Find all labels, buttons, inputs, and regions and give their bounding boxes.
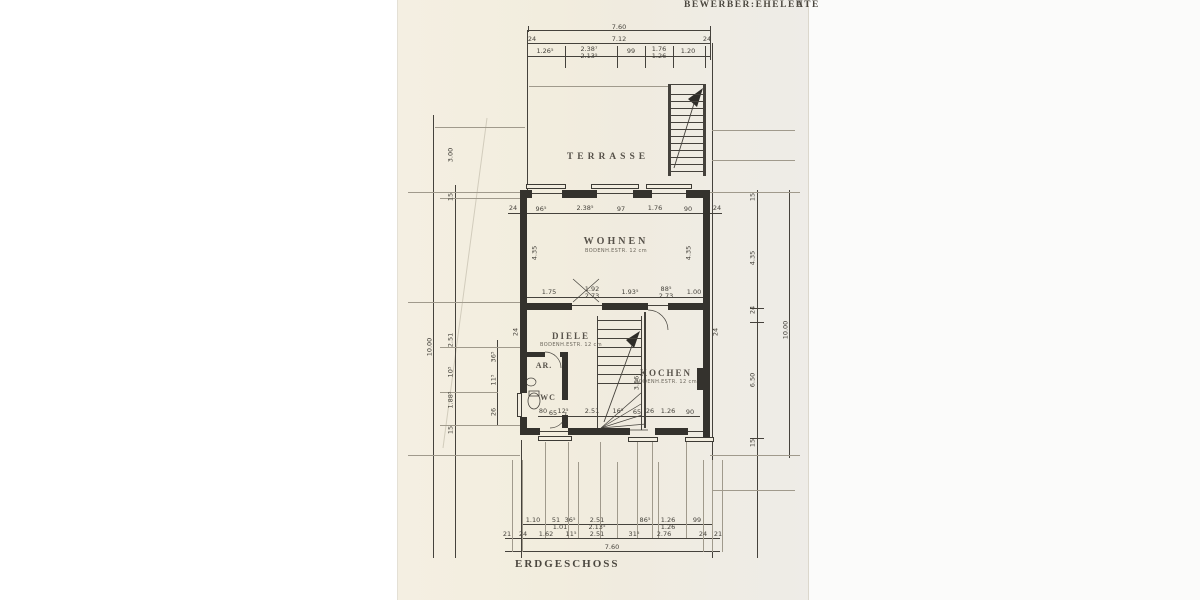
dimension-label: 31⁵: [629, 531, 640, 538]
dimension-label: 10.00: [783, 321, 790, 340]
dimension-line: [598, 338, 641, 339]
dimension-line: [668, 84, 706, 85]
dimension-line: [671, 101, 703, 102]
dimension-label: 26: [491, 408, 498, 416]
dimension-label: 90: [684, 206, 692, 213]
dimension-label: 36⁵: [565, 517, 576, 524]
window-sill: [538, 436, 572, 441]
scan-mark: A: [796, 0, 804, 10]
dimension-label: 2.51: [590, 531, 604, 538]
dimension-label: 1.00: [687, 289, 701, 296]
dimension-line: [688, 431, 703, 432]
dimension-label: 15: [448, 426, 455, 434]
dimension-line: [671, 129, 703, 130]
dimension-line: [598, 320, 641, 321]
extension-line: [408, 455, 520, 456]
extension-line: [578, 462, 579, 538]
extension-line: [686, 442, 687, 538]
wall-segment: [520, 428, 540, 435]
dimension-label: 1.93⁵: [621, 289, 638, 296]
dimension-label: 10.00: [427, 338, 434, 357]
dimension-label: 4.35: [750, 251, 757, 265]
wall-segment: [520, 303, 572, 310]
extension-line: [712, 130, 795, 131]
dimension-line: [505, 538, 720, 539]
extension-line: [658, 462, 659, 538]
dimension-label: 7.60: [612, 24, 626, 31]
dimension-label: 24: [509, 205, 517, 212]
dimension-label: 1.26⁵: [536, 48, 553, 55]
dimension-label: 21: [503, 531, 511, 538]
dimension-line: [703, 85, 706, 176]
dimension-line: [528, 56, 710, 57]
dimension-label: 65: [549, 410, 557, 417]
floor-title: ERDGESCHOSS: [515, 558, 620, 570]
dimension-label: 11⁵: [566, 531, 577, 538]
dimension-label: 1.62: [539, 531, 553, 538]
wall-segment: [697, 368, 703, 390]
wall-segment: [703, 197, 710, 440]
dimension-line: [671, 143, 703, 144]
dimension-line: [433, 115, 434, 558]
dimension-label: 24: [528, 36, 536, 43]
dimension-line: [705, 46, 706, 68]
dimension-label: 24: [699, 531, 707, 538]
floor-plan-scan: BEWERBER:EHELEUTE A ERDGESCHOSS TERRASSE…: [0, 0, 1200, 600]
dimension-line: [528, 26, 529, 32]
dimension-label: 1.26: [661, 408, 675, 415]
dimension-line: [673, 46, 674, 68]
extension-line: [652, 442, 653, 538]
dimension-line: [527, 30, 528, 190]
extension-line: [529, 86, 668, 87]
room-note-wohnen: BODENH.ESTR. 12 cm: [585, 248, 647, 254]
dimension-label: 1.75: [542, 289, 556, 296]
wall-segment: [602, 303, 648, 310]
room-label-kochen: KOCHEN: [640, 368, 692, 378]
dimension-label: 97: [617, 206, 625, 213]
window-sill: [591, 184, 639, 189]
extension-line: [435, 127, 525, 128]
dimension-label: 99: [693, 517, 701, 524]
dimension-line: [505, 551, 720, 552]
scan-margin-left: [0, 0, 398, 600]
dimension-label: 24: [513, 328, 520, 336]
wall-segment: [668, 303, 703, 310]
room-label-wohnen: WOHNEN: [584, 236, 649, 247]
wall-segment: [527, 352, 545, 357]
dimension-label: 24: [713, 328, 720, 336]
dimension-label: 12⁵: [558, 408, 569, 415]
extension-line: [712, 460, 713, 552]
dimension-label: 26: [646, 408, 654, 415]
dimension-line: [671, 171, 703, 172]
dimension-label: 90: [686, 409, 694, 416]
dimension-label: 7.60: [605, 544, 619, 551]
dimension-line: [597, 193, 633, 194]
dimension-label: 4.35: [686, 246, 693, 260]
dimension-line: [617, 46, 618, 68]
dimension-line: [750, 322, 764, 323]
wall-segment: [562, 415, 568, 428]
dimension-line: [671, 164, 703, 165]
dimension-label: 10⁵: [448, 367, 455, 378]
dimension-label: 24: [713, 205, 721, 212]
dimension-line: [598, 347, 641, 348]
dimension-label: 1.10: [526, 517, 540, 524]
dimension-label: 80: [539, 408, 547, 415]
dimension-label: 2.13⁵: [580, 53, 597, 60]
window-sill: [628, 437, 658, 442]
dimension-line: [671, 122, 703, 123]
window-sill: [526, 184, 566, 189]
dimension-label: 36⁵: [491, 352, 498, 363]
window-sill: [646, 184, 692, 189]
extension-line: [408, 302, 520, 303]
room-label-diele: DIELE: [552, 331, 590, 341]
dimension-line: [520, 297, 710, 298]
extension-line: [617, 462, 618, 538]
room-label-terrasse: TERRASSE: [567, 152, 649, 162]
window-sill: [685, 437, 714, 442]
dimension-label: 96⁵: [536, 206, 547, 213]
extension-line: [408, 192, 520, 193]
wall-segment: [520, 197, 527, 393]
scan-margin-right: [808, 0, 1200, 600]
dimension-line: [671, 157, 703, 158]
room-label-ar: AR.: [536, 361, 553, 370]
extension-line: [545, 442, 546, 538]
dimension-line: [710, 26, 711, 60]
dimension-label: 6.50: [750, 373, 757, 387]
dimension-line: [528, 43, 710, 44]
dimension-label: 2.73: [659, 293, 673, 300]
dimension-label: 24: [703, 36, 711, 43]
room-label-wc: WC: [540, 393, 556, 402]
extension-line: [710, 455, 800, 456]
dimension-line: [668, 85, 671, 176]
dimension-line: [598, 356, 641, 357]
dimension-line: [757, 190, 758, 558]
extension-line: [722, 460, 723, 552]
dimension-label: 99: [627, 48, 635, 55]
dimension-label: 16⁵: [613, 408, 624, 415]
dimension-label: 1.20: [681, 48, 695, 55]
dimension-label: 2.38⁵: [576, 205, 593, 212]
wall-segment: [568, 428, 630, 435]
dimension-label: 2.73: [585, 293, 599, 300]
dimension-label: 65: [633, 409, 641, 416]
wall-segment: [655, 428, 688, 435]
dimension-label: 24: [750, 306, 757, 314]
dimension-label: 1.76: [648, 205, 662, 212]
dimension-line: [648, 305, 668, 306]
wall-segment: [562, 357, 568, 400]
dimension-line: [641, 316, 642, 430]
extension-line: [522, 460, 523, 552]
dimension-line: [671, 94, 703, 95]
dimension-label: 1.26: [652, 53, 666, 60]
window-sill: [517, 393, 522, 417]
dimension-label: 15: [750, 439, 757, 447]
dimension-line: [565, 46, 566, 68]
dimension-line: [532, 193, 562, 194]
dimension-label: 7.12: [612, 36, 626, 43]
dimension-line: [671, 115, 703, 116]
dimension-label: 2.51: [448, 333, 455, 347]
dimension-label: 2.76: [657, 531, 671, 538]
dimension-label: 11⁵: [491, 375, 498, 386]
dimension-line: [508, 213, 722, 214]
wall-segment: [562, 190, 597, 198]
dimension-line: [671, 150, 703, 151]
dimension-label: 15: [750, 193, 757, 201]
dimension-label: 86⁵: [640, 517, 651, 524]
dimension-label: 15: [448, 193, 455, 201]
dimension-line: [598, 365, 641, 366]
dimension-line: [598, 329, 641, 330]
extension-line: [637, 442, 638, 538]
extension-line: [712, 490, 795, 491]
dimension-line: [671, 108, 703, 109]
dimension-label: 4.35: [532, 246, 539, 260]
extension-line: [712, 160, 795, 161]
dimension-label: 3.00: [448, 148, 455, 162]
dimension-line: [572, 305, 602, 306]
dimension-label: 2.51: [585, 408, 599, 415]
dimension-line: [540, 431, 568, 432]
dimension-label: 1.88⁵: [448, 391, 455, 408]
dimension-line: [455, 185, 456, 558]
dimension-label: 3.56: [634, 376, 641, 390]
drawing-sheet: [398, 0, 808, 600]
dimension-label: 24: [519, 531, 527, 538]
dimension-line: [652, 193, 686, 194]
dimension-line: [671, 136, 703, 137]
wall-segment: [633, 190, 652, 198]
extension-line: [703, 460, 704, 552]
dimension-line: [645, 46, 646, 68]
dimension-label: 21: [714, 531, 722, 538]
extension-line: [512, 460, 513, 552]
room-note-diele: BODENH.ESTR. 12 cm: [540, 342, 602, 348]
